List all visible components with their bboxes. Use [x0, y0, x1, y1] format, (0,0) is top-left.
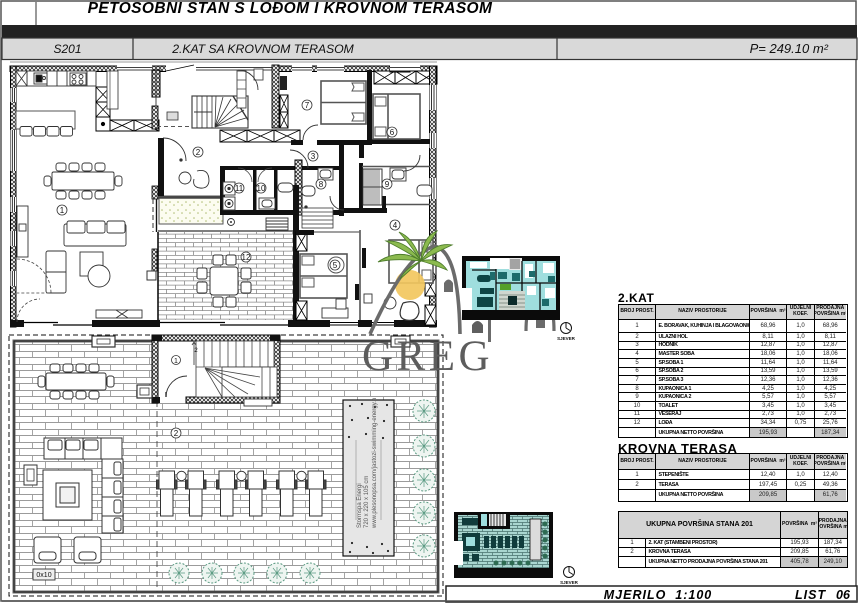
- svg-text:GREG: GREG: [362, 333, 493, 380]
- svg-text:11: 11: [235, 184, 244, 193]
- svg-text:8: 8: [319, 180, 324, 189]
- svg-text:5: 5: [333, 261, 338, 270]
- svg-text:www.plesonopsa.com/jastozi-swi: www.plesonopsa.com/jastozi-swimming-ener…: [372, 398, 378, 529]
- svg-text:1: 1: [60, 206, 65, 215]
- svg-text:3: 3: [311, 152, 316, 161]
- svg-text:9: 9: [385, 180, 390, 189]
- svg-text:720 x 220 x 105 cm: 720 x 220 x 105 cm: [364, 476, 370, 528]
- svg-text:2: 2: [196, 148, 201, 157]
- svg-text:SJEVER: SJEVER: [560, 580, 579, 585]
- svg-text:6: 6: [390, 128, 395, 137]
- svg-text:10: 10: [257, 184, 266, 193]
- svg-text:12: 12: [242, 253, 251, 262]
- svg-text:Stormspa Energi: Stormspa Energi: [357, 483, 363, 528]
- svg-text:SJEVER: SJEVER: [557, 336, 576, 341]
- svg-text:1: 1: [174, 358, 178, 365]
- svg-text:2: 2: [174, 429, 179, 438]
- svg-text:4: 4: [393, 221, 398, 230]
- svg-text:7: 7: [305, 101, 310, 110]
- svg-text:0x10: 0x10: [36, 572, 51, 579]
